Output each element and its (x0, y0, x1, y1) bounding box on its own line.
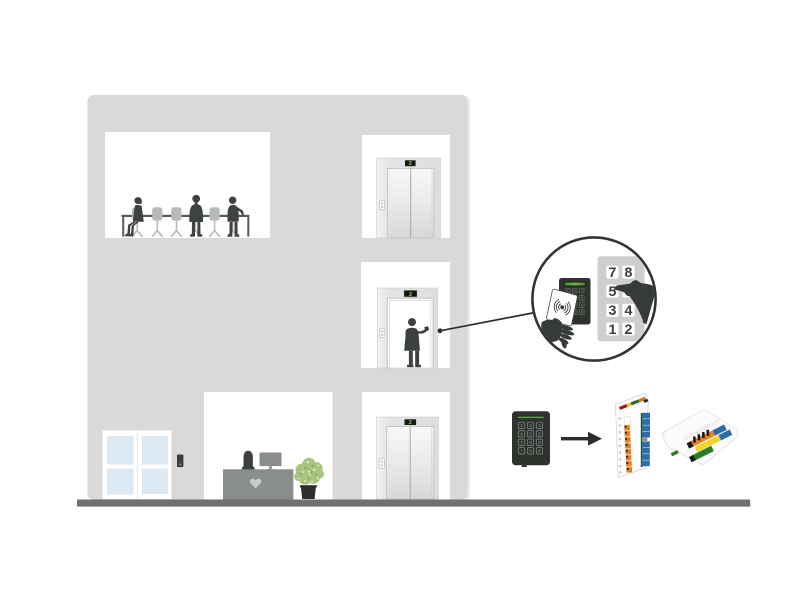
svg-text:1: 1 (608, 322, 616, 338)
svg-text:#: # (581, 311, 583, 315)
svg-text:2: 2 (409, 292, 412, 298)
svg-text:0: 0 (529, 449, 532, 454)
svg-text:6: 6 (538, 432, 541, 437)
svg-text:7: 7 (520, 440, 523, 445)
svg-text:6: 6 (581, 296, 583, 300)
svg-text:4: 4 (625, 303, 633, 319)
svg-text:2: 2 (574, 289, 576, 293)
svg-text:2: 2 (625, 322, 633, 338)
svg-text:5: 5 (608, 284, 616, 300)
svg-text:8: 8 (529, 440, 532, 445)
svg-text:2: 2 (529, 423, 532, 428)
svg-text:2: 2 (409, 420, 412, 426)
svg-text:2: 2 (409, 161, 412, 167)
svg-text:8: 8 (625, 265, 633, 281)
svg-text:7: 7 (608, 265, 616, 281)
svg-text:3: 3 (608, 303, 616, 319)
svg-text:4: 4 (520, 432, 523, 437)
svg-text:9: 9 (538, 440, 541, 445)
svg-text:5: 5 (529, 432, 532, 437)
svg-text:1: 1 (520, 423, 523, 428)
svg-text:*: * (521, 449, 523, 454)
svg-text:3: 3 (581, 289, 583, 293)
svg-text:#: # (538, 449, 541, 454)
svg-text:9: 9 (581, 303, 583, 307)
svg-text:3: 3 (538, 423, 541, 428)
